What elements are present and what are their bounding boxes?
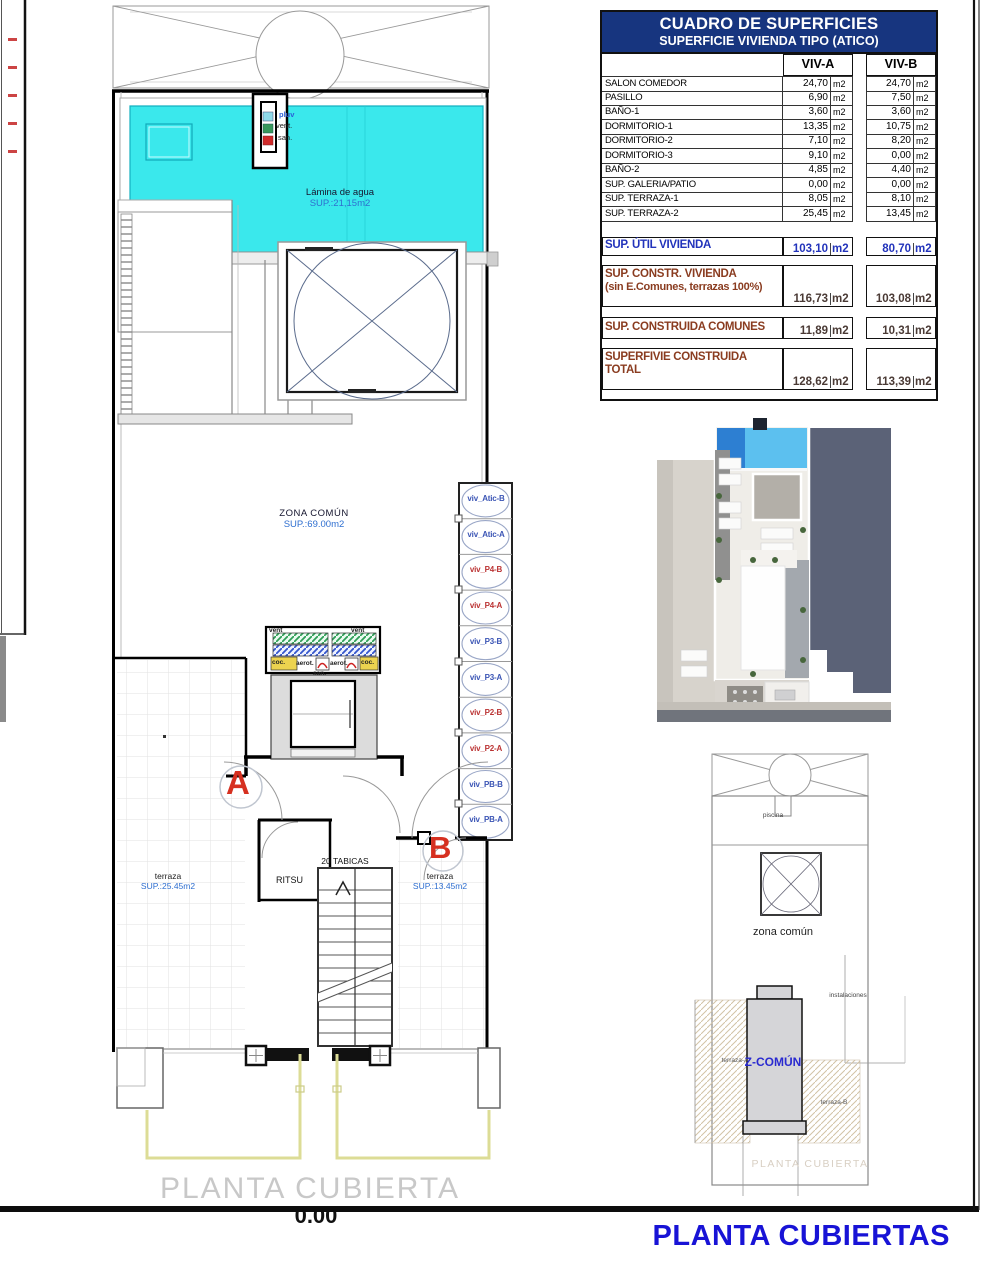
drawing-sheet: pluv vent. san. Lámina de agua SUP.:21,1… xyxy=(0,0,998,1280)
frame-bottom-line xyxy=(0,1206,979,1212)
sheet-title: PLANTA CUBIERTAS xyxy=(596,1220,950,1253)
sheet-frame: 0.00 xyxy=(0,0,998,1280)
